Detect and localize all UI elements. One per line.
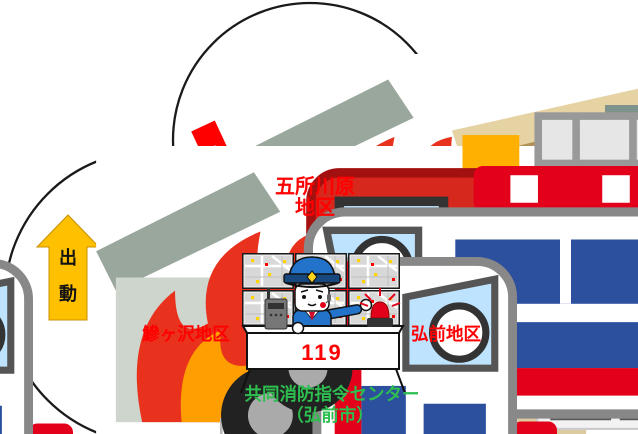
- label-command-center-line1: 共同消防指令センター: [245, 384, 420, 404]
- label-command-center-line2: （弘前市）: [286, 405, 374, 425]
- diagram-canvas: 火の用心: [0, 0, 638, 434]
- label-ajigasawa: 鰺ヶ沢地区: [142, 324, 230, 344]
- dispatch-label-ajigasawa-char1: 出: [59, 247, 77, 268]
- dispatch-label-ajigasawa-char2: 動: [59, 283, 77, 304]
- desk-emergency-number: 119: [301, 340, 343, 365]
- fire-dispatch-diagram: 火の用心: [0, 0, 638, 434]
- label-hirosaki: 弘前地区: [411, 324, 481, 344]
- headset-mic: [320, 302, 326, 308]
- label-goshogawara-line2: 地区: [295, 196, 335, 219]
- operator-left-hand: [293, 323, 304, 334]
- label-goshogawara-line1: 五所川原: [275, 175, 355, 198]
